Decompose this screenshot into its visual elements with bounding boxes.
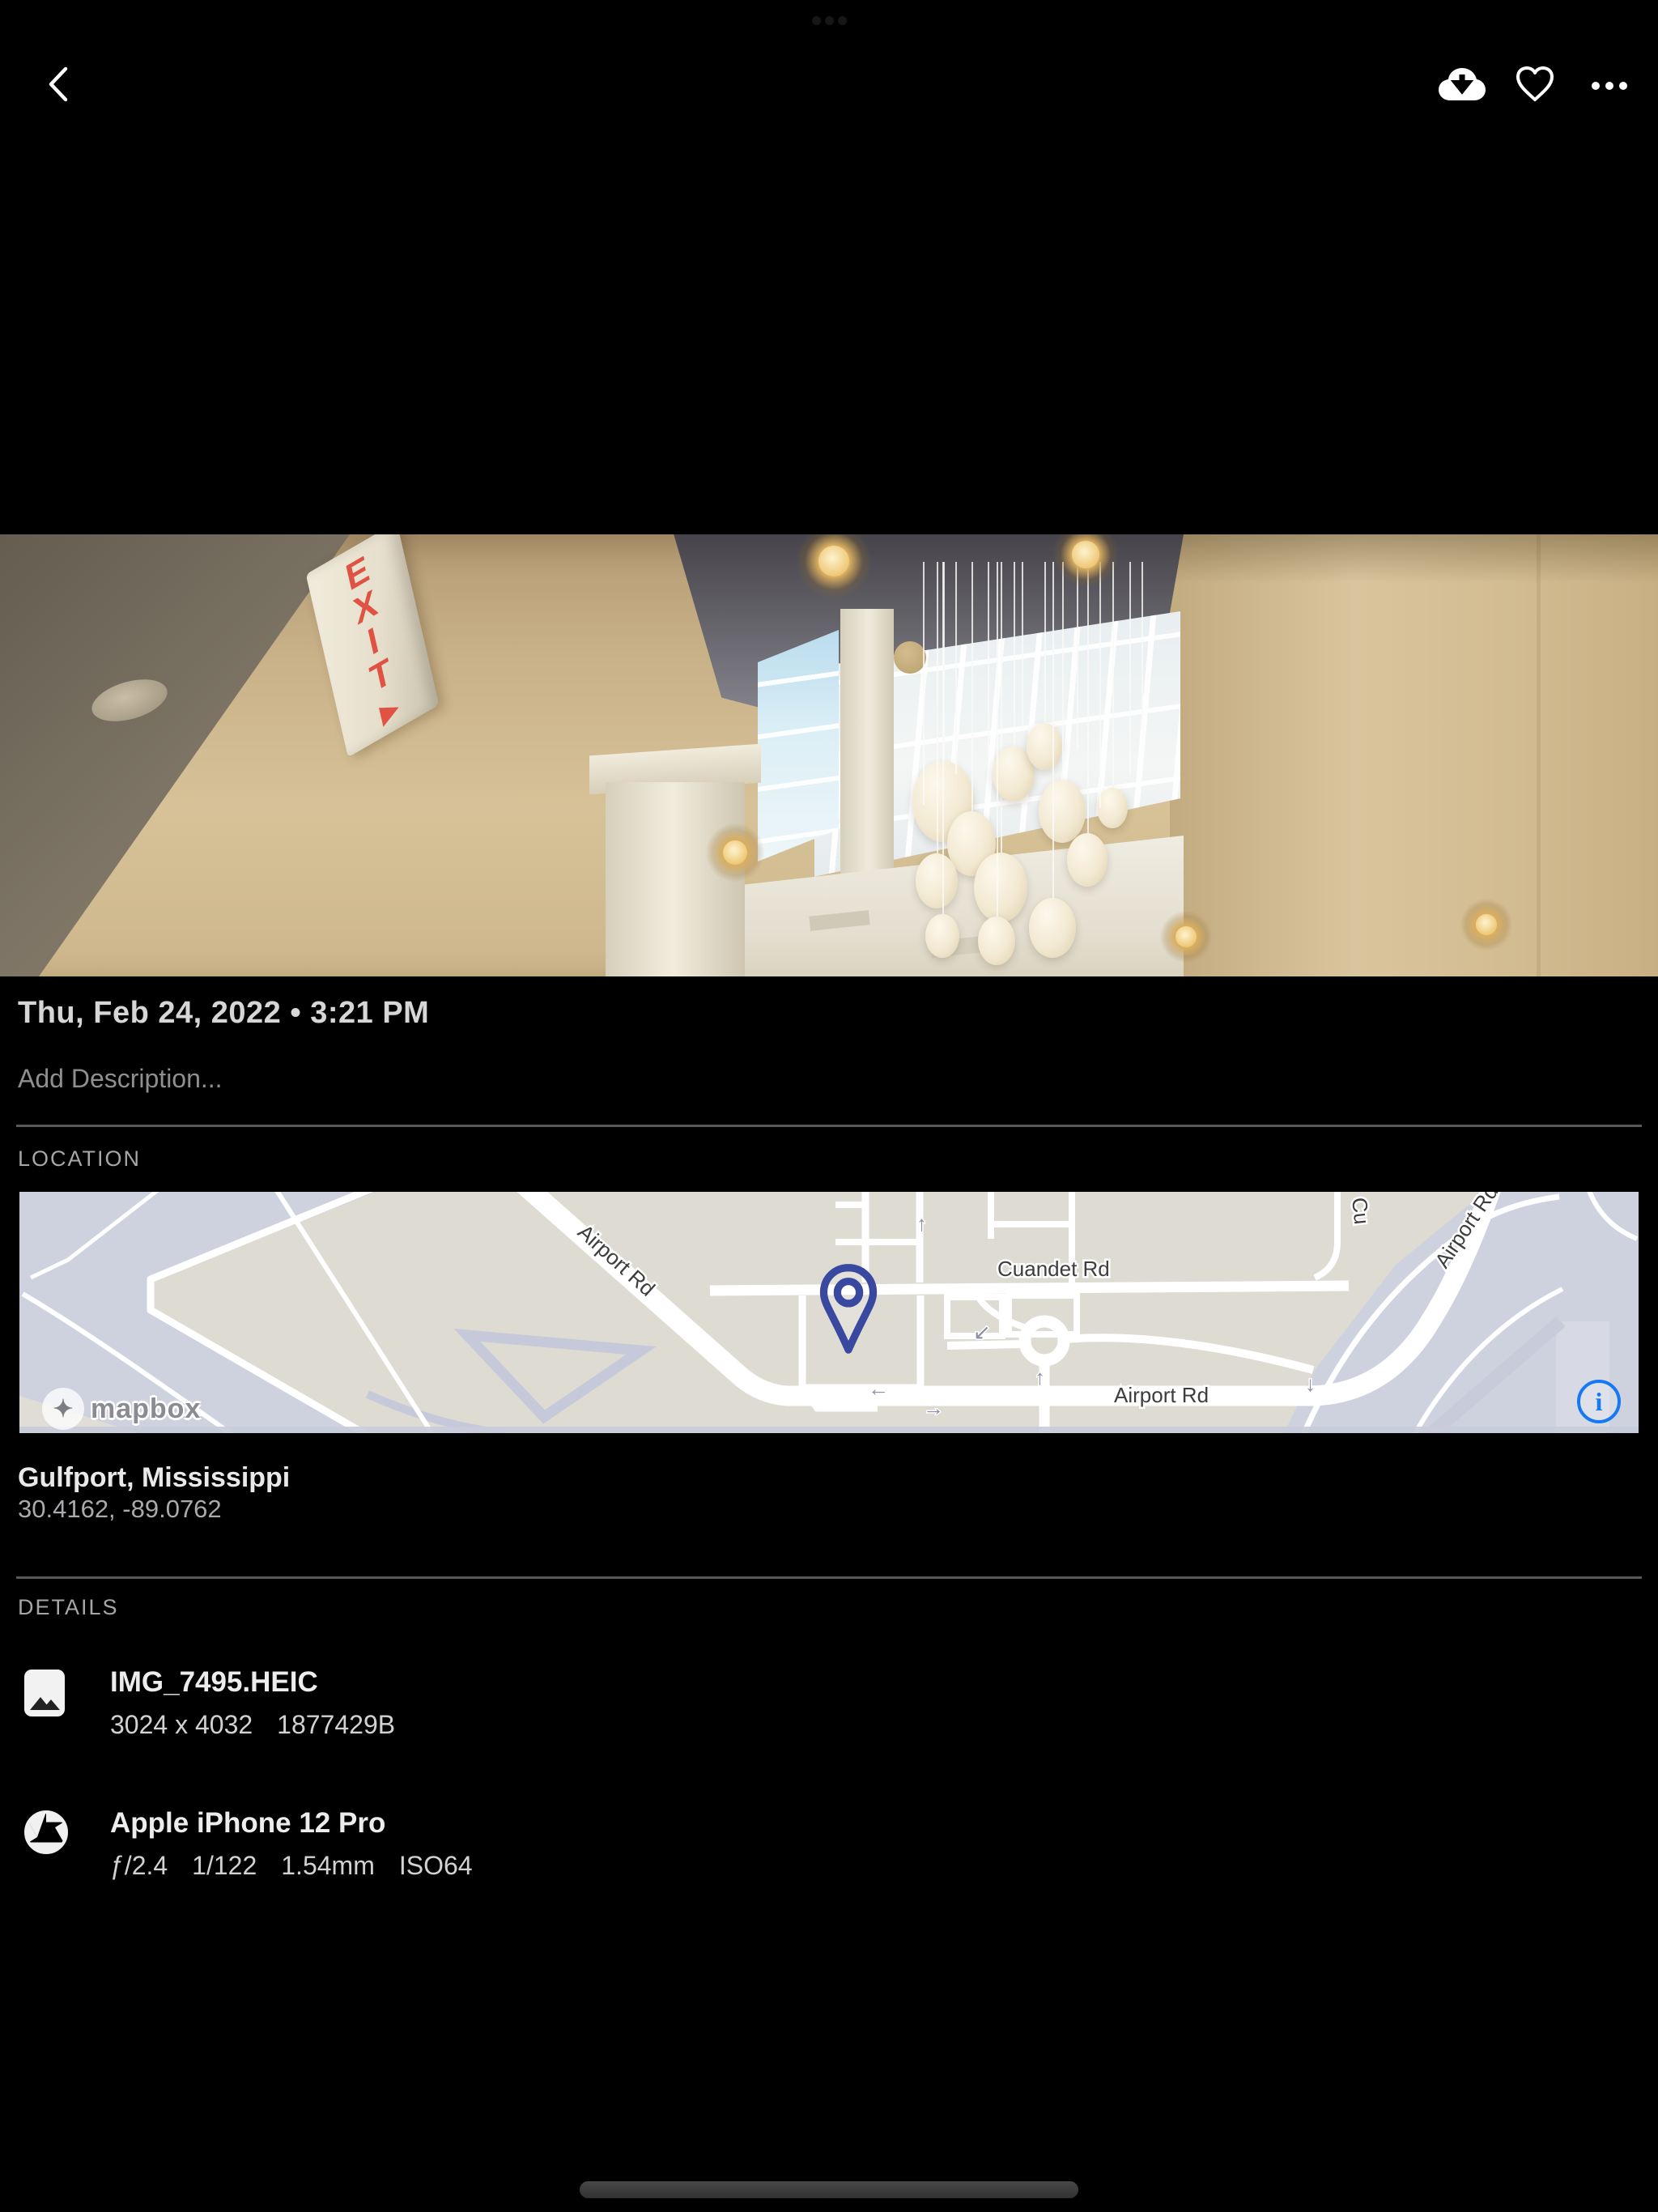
road-arrow-down-left: ↙ <box>973 1320 991 1344</box>
file-size: 1877429B <box>277 1710 395 1740</box>
place-coordinates: 30.4162, -89.0762 <box>18 1495 222 1524</box>
camera-name: Apple iPhone 12 Pro <box>110 1807 473 1840</box>
place-name: Gulfport, Mississippi <box>18 1462 290 1494</box>
road-label-airport-diag: Airport Rd <box>573 1219 660 1301</box>
camera-shutter: 1/122 <box>192 1851 257 1881</box>
divider <box>16 1125 1642 1127</box>
camera-aperture: ƒ/2.4 <box>110 1851 168 1881</box>
road-label-airport-bottom: Airport Rd <box>1114 1383 1209 1407</box>
description-placeholder[interactable]: Add Description... <box>18 1064 223 1094</box>
road-label-partial: Cu <box>1347 1196 1374 1225</box>
road-arrow-right: → <box>923 1396 944 1420</box>
heart-icon <box>1515 66 1555 107</box>
mapbox-wordmark: mapbox <box>91 1393 201 1425</box>
camera-iso: ISO64 <box>399 1851 473 1881</box>
cloud-download-icon <box>1438 66 1486 106</box>
image-file-icon <box>24 1670 65 1716</box>
photo-image[interactable]: EXIT▸ <box>0 534 1658 976</box>
back-button[interactable] <box>39 65 78 107</box>
top-bar <box>0 0 1658 146</box>
road-arrow-up: ↑ <box>1035 1365 1045 1389</box>
home-indicator[interactable] <box>580 2181 1078 2198</box>
chevron-left-icon <box>46 66 70 107</box>
road-arrow-up-small: ↑ <box>916 1211 927 1236</box>
location-map[interactable]: ← → ↑ ↑ ↓ ↙ Airport Rd Cuandet Rd Airpor… <box>19 1192 1639 1433</box>
download-button[interactable] <box>1435 65 1490 107</box>
aperture-icon <box>24 1810 68 1858</box>
location-section-label: LOCATION <box>18 1146 141 1172</box>
more-options-button[interactable] <box>1584 74 1635 97</box>
photo-detail-screen: EXIT▸ Thu, Feb 24, 2022 • 3:21 PM Add De… <box>0 0 1658 2212</box>
ellipsis-icon <box>1592 82 1627 90</box>
camera-focal-length: 1.54mm <box>281 1851 375 1881</box>
road-arrow-down: ↓ <box>1305 1372 1316 1396</box>
photo-date: Thu, Feb 24, 2022 • 3:21 PM <box>18 996 429 1031</box>
divider <box>16 1576 1642 1579</box>
favorite-button[interactable] <box>1511 63 1559 108</box>
road-label-cuandet: Cuandet Rd <box>997 1257 1110 1281</box>
file-name: IMG_7495.HEIC <box>110 1666 395 1699</box>
map-info-button[interactable]: i <box>1577 1380 1621 1423</box>
location-pin-icon <box>819 1261 878 1361</box>
details-section-label: DETAILS <box>18 1595 119 1620</box>
mapbox-attribution[interactable]: ✦ mapbox <box>42 1388 201 1430</box>
mapbox-logo-icon: ✦ <box>42 1388 84 1430</box>
file-dimensions: 3024 x 4032 <box>110 1710 253 1740</box>
road-arrow-left: ← <box>868 1376 889 1401</box>
